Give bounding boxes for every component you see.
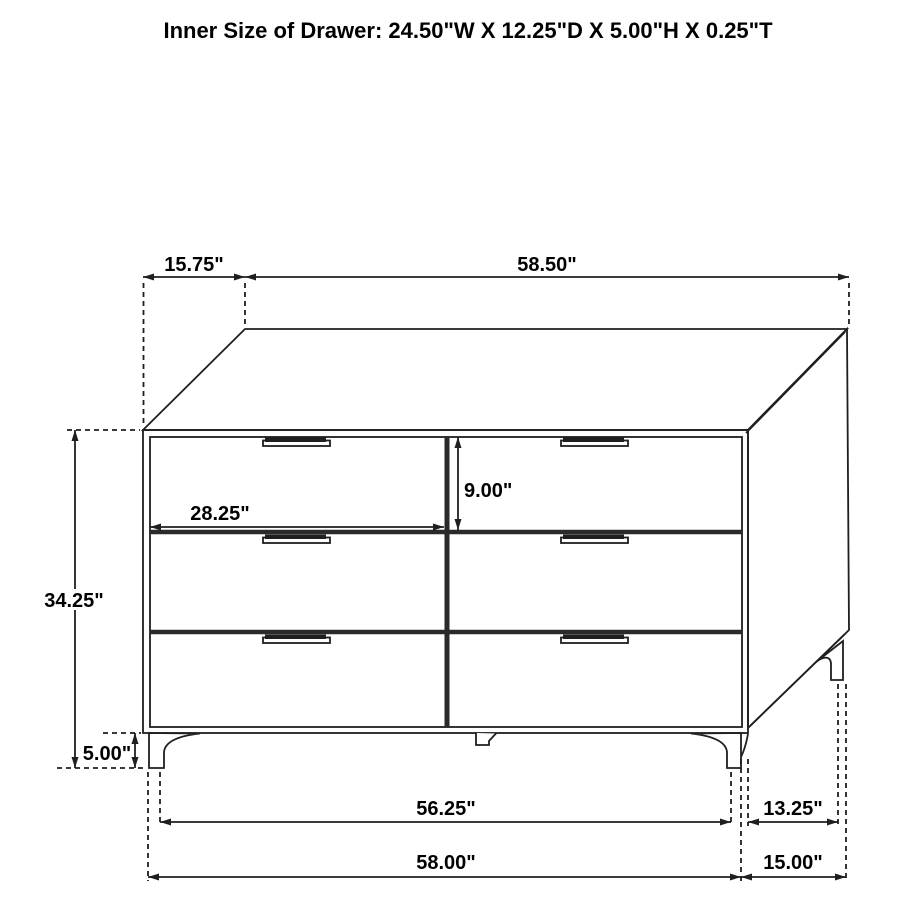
arrow-icon — [132, 757, 139, 768]
dim-label-side-legs-span: 13.25" — [763, 798, 823, 820]
diagram-canvas: 15.75" 58.50" 34.25" 5.00" 28.25" 9.00" … — [0, 0, 900, 900]
dim-label-top-depth: 15.75" — [164, 254, 224, 276]
arrow-icon — [245, 274, 256, 281]
arrow-icon — [455, 437, 462, 448]
arrow-icon — [455, 519, 462, 530]
arrow-icon — [72, 757, 79, 768]
diagram-title: Inner Size of Drawer: 24.50"W X 12.25"D … — [163, 18, 773, 43]
dim-label-overall-depth: 15.00" — [763, 852, 823, 874]
drawer-handle-icon-bottom-left — [263, 635, 330, 644]
dim-label-case-height: 34.25" — [44, 590, 104, 612]
front-left-leg — [149, 733, 200, 768]
front-right-leg-side-flare — [741, 734, 748, 757]
drawer-handle-icon-top-right — [561, 438, 628, 447]
dim-label-overall-width: 58.00" — [416, 852, 476, 874]
dim-label-front-legs-span: 56.25" — [416, 798, 476, 820]
arrow-icon — [720, 819, 731, 826]
arrow-icon — [838, 274, 849, 281]
drawer-handle-icon-top-left — [263, 438, 330, 447]
arrow-icon — [72, 430, 79, 441]
arrow-icon — [827, 819, 838, 826]
dim-label-leg-height: 5.00" — [83, 743, 131, 765]
center-support-bracket — [476, 733, 496, 745]
arrow-icon — [150, 524, 161, 531]
drawer-handle-icon-middle-left — [263, 535, 330, 544]
drawer-handle-icon-bottom-right — [561, 635, 628, 644]
arrow-icon — [234, 274, 245, 281]
arrow-icon — [433, 524, 444, 531]
dresser-drawing — [143, 329, 849, 768]
rear-right-leg — [816, 641, 843, 680]
arrow-icon — [143, 274, 154, 281]
arrow-icon — [748, 819, 759, 826]
dresser-top-face — [143, 329, 847, 430]
arrow-icon — [741, 874, 752, 881]
dresser-dimension-diagram: 15.75" 58.50" 34.25" 5.00" 28.25" 9.00" … — [0, 0, 900, 900]
arrow-icon — [835, 874, 846, 881]
dim-label-drawer-width: 28.25" — [190, 503, 250, 525]
front-right-leg — [691, 733, 741, 768]
drawer-handle-icon-middle-right — [561, 535, 628, 544]
arrow-icon — [730, 874, 741, 881]
arrow-icon — [132, 733, 139, 744]
arrow-icon — [148, 874, 159, 881]
dim-label-top-width: 58.50" — [517, 254, 577, 276]
dim-label-drawer-height: 9.00" — [464, 480, 512, 502]
arrow-icon — [160, 819, 171, 826]
